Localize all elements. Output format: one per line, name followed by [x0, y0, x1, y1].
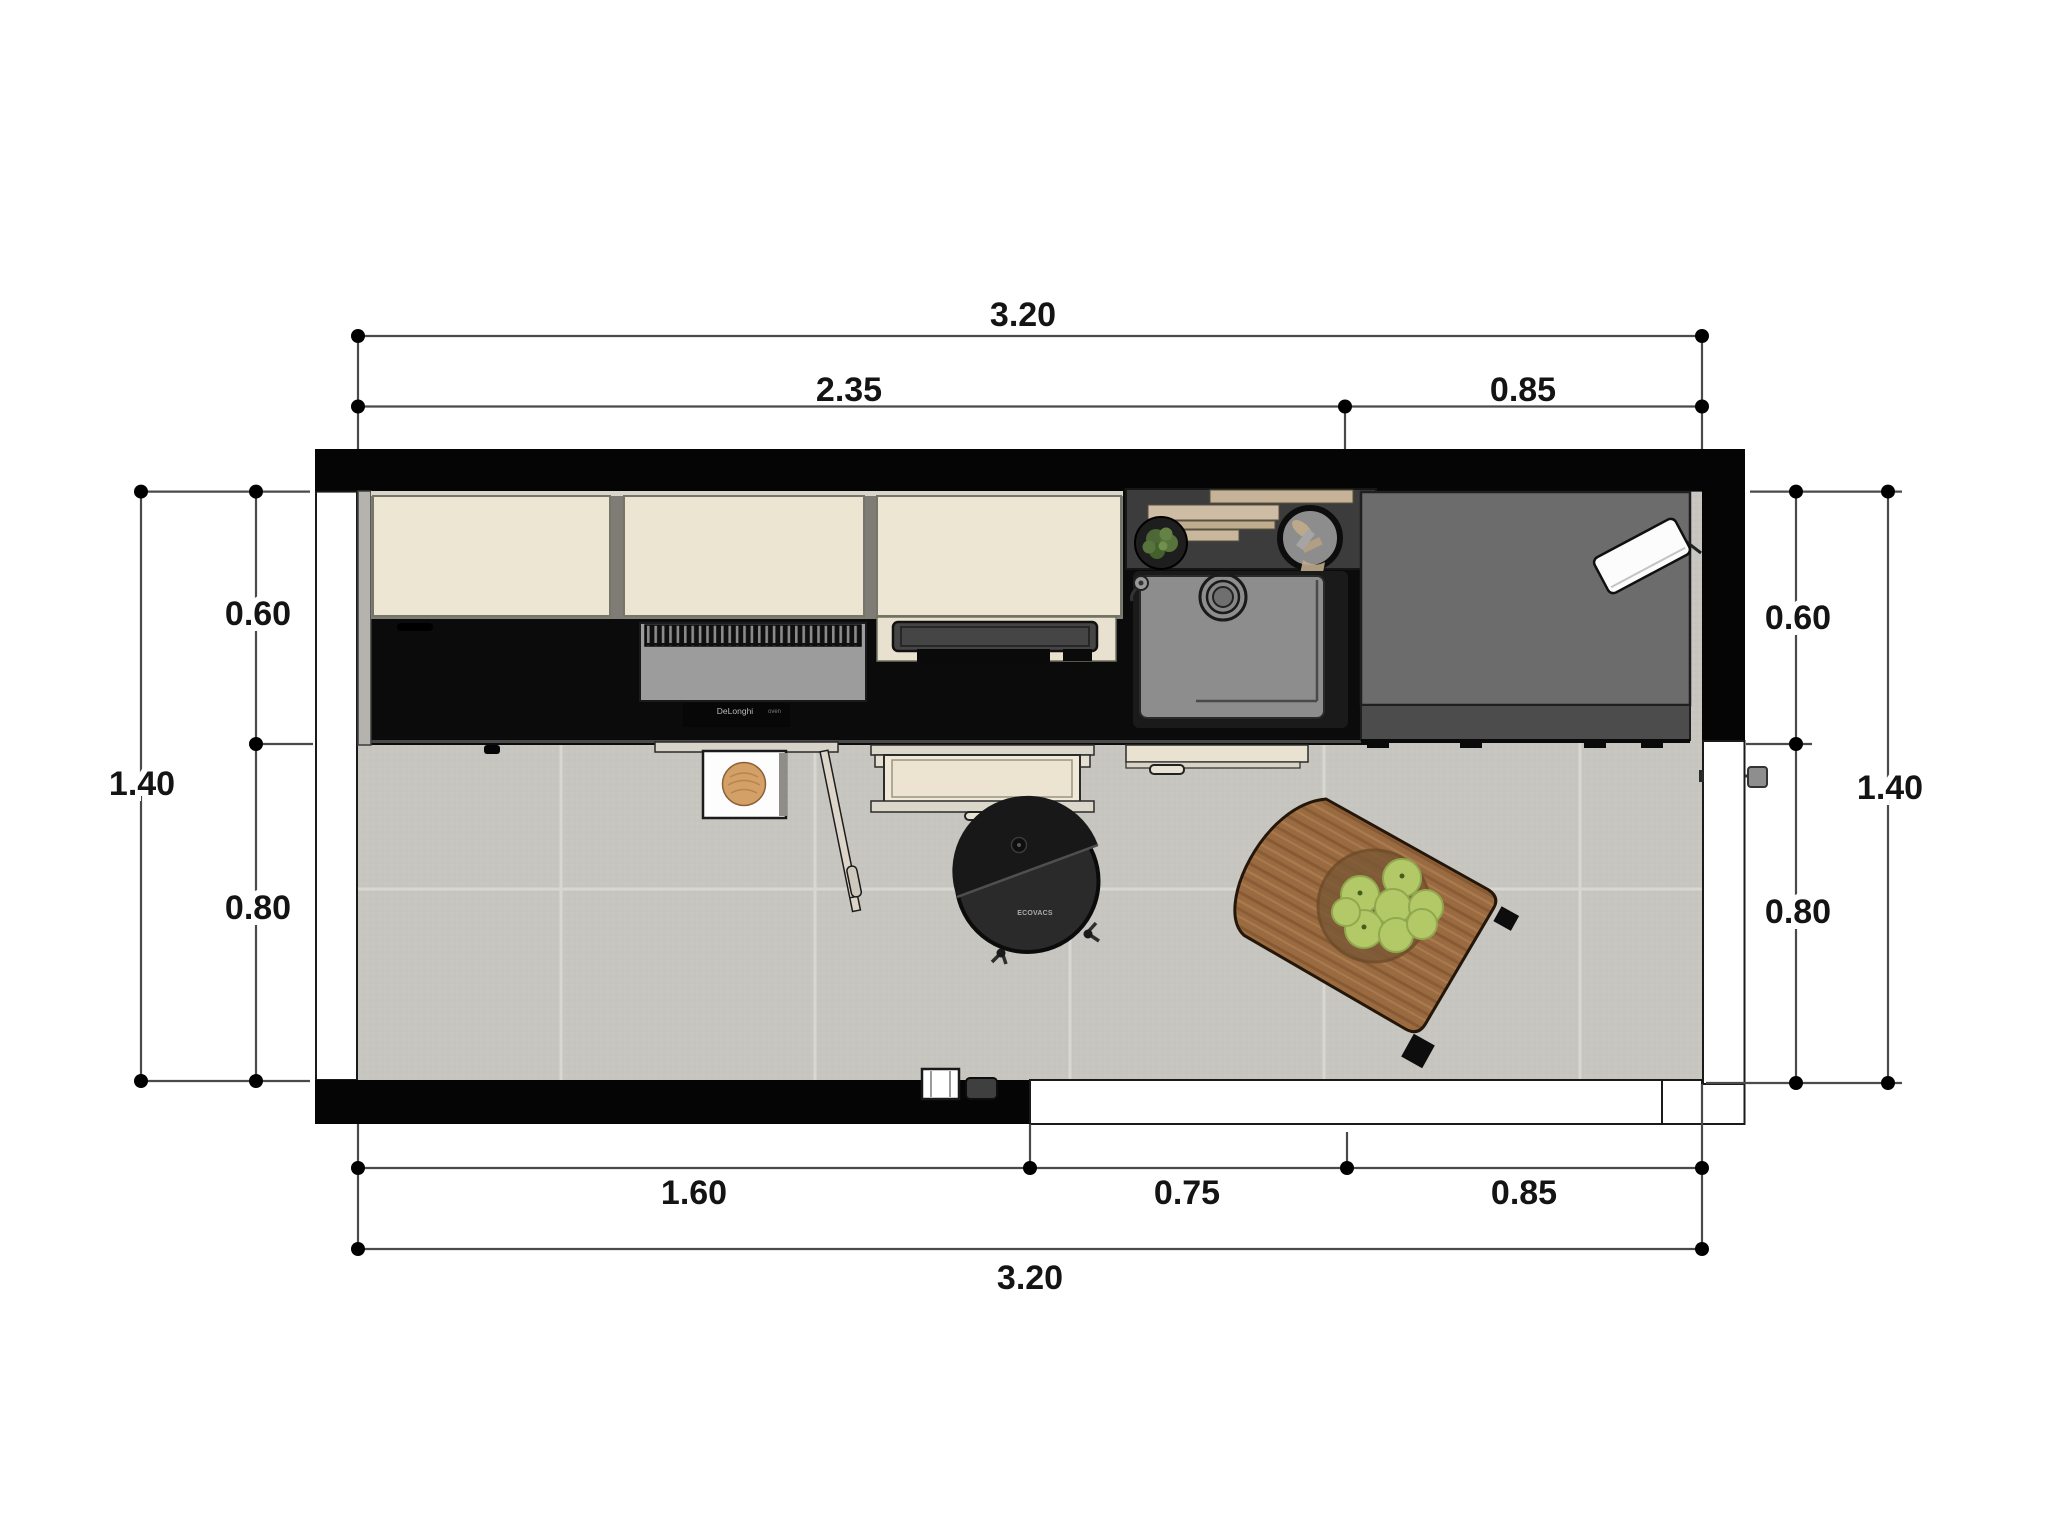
- svg-text:3.20: 3.20: [990, 296, 1056, 334]
- svg-text:1.40: 1.40: [109, 765, 175, 803]
- svg-text:1.40: 1.40: [1857, 769, 1923, 807]
- svg-text:ECOVACS: ECOVACS: [1017, 910, 1053, 917]
- svg-text:0.80: 0.80: [225, 889, 291, 927]
- svg-text:0.85: 0.85: [1491, 1174, 1557, 1212]
- svg-text:0.60: 0.60: [1765, 599, 1831, 637]
- svg-text:1.60: 1.60: [661, 1174, 727, 1212]
- svg-text:DeLonghi: DeLonghi: [717, 706, 754, 716]
- svg-text:0.80: 0.80: [1765, 893, 1831, 931]
- svg-text:0.60: 0.60: [225, 595, 291, 633]
- svg-text:2.35: 2.35: [816, 371, 882, 409]
- svg-text:0.75: 0.75: [1154, 1174, 1220, 1212]
- svg-text:0.85: 0.85: [1490, 371, 1556, 409]
- svg-text:oven: oven: [768, 709, 781, 715]
- svg-text:3.20: 3.20: [997, 1259, 1063, 1297]
